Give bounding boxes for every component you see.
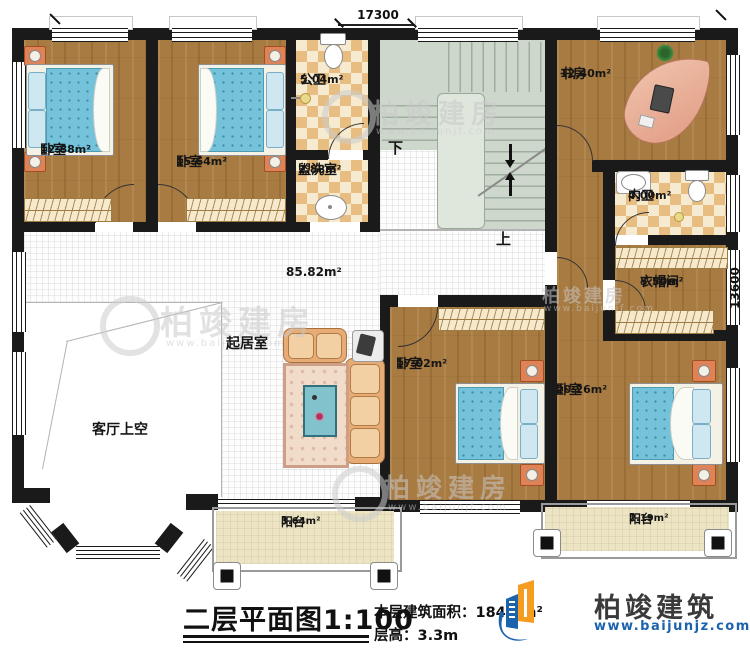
wall-bath-divider-a — [296, 150, 328, 160]
coffee-table — [303, 385, 337, 437]
title-underline-1 — [183, 635, 369, 638]
dimension-top: 17300 — [355, 8, 401, 22]
wardrobe-bedroom-3 — [438, 308, 545, 331]
pillow — [520, 389, 538, 424]
lamp-icon — [269, 156, 281, 168]
nightstand — [520, 464, 544, 486]
room-area: 15.64m² — [176, 156, 227, 169]
sofa-top — [283, 328, 347, 363]
window-top-bedroom-2 — [172, 28, 252, 42]
bed-3-mattress — [458, 387, 504, 460]
sink-dot — [328, 205, 332, 209]
column — [704, 529, 732, 557]
brand-logo — [494, 577, 552, 645]
nightstand — [520, 360, 544, 382]
sofa-right — [345, 358, 385, 464]
bay-window-bottom — [76, 546, 160, 559]
table-flower — [315, 412, 324, 421]
dimension-right: 13600 — [728, 258, 742, 318]
dimension-tick — [715, 9, 726, 20]
dimension-line-top — [338, 24, 414, 26]
floor-plan: 柏竣建房 www.baijunjf.com 柏竣建房 www.baijunjf.… — [0, 0, 750, 652]
storey-height-value: 3.3m — [418, 628, 459, 644]
wall-bed3-top-b — [438, 295, 545, 307]
room-area: 4.00m² — [628, 190, 671, 203]
bed-3-sheet-fold — [500, 387, 518, 460]
nightstand — [264, 46, 286, 66]
lamp-icon — [526, 365, 538, 377]
plant-icon — [656, 44, 674, 62]
pillow — [266, 110, 284, 148]
storey-height-line: 层高：3.3m — [374, 624, 458, 645]
wardrobe-cloakroom-top — [615, 247, 728, 269]
storey-height-label: 层高： — [374, 628, 418, 644]
room-area: 85.82m² — [286, 266, 342, 280]
void-outline-right — [221, 302, 222, 497]
wall-bed1-bed2 — [146, 40, 158, 222]
wall-stair-study-a — [545, 40, 557, 252]
wardrobe-bedroom-2 — [186, 198, 286, 222]
pillow — [28, 72, 46, 110]
wall-bedrooms-bottom-c — [196, 222, 310, 232]
title-underline-2 — [183, 641, 369, 643]
window-right-ensuite — [726, 175, 740, 232]
wall-bedrooms-bottom-a — [12, 222, 95, 232]
sofa-cushion — [288, 333, 314, 359]
lamp-icon — [698, 469, 710, 481]
column — [370, 562, 398, 590]
bed-4-sheet-fold — [670, 387, 694, 460]
lamp-icon — [526, 469, 538, 481]
dimension-tick — [334, 18, 344, 28]
wall-bath-stair — [368, 40, 380, 232]
column-core — [541, 537, 554, 550]
sofa-cushion — [316, 333, 342, 359]
brand-website: www.baijunjz.com — [594, 619, 750, 634]
room-area: 5.50m² — [640, 276, 683, 289]
wardrobe-bedroom-1 — [24, 198, 112, 222]
column-core — [221, 570, 234, 583]
window-right-study — [726, 55, 740, 135]
room-name: 客厅上空 — [92, 422, 148, 438]
toilet-bowl — [324, 44, 343, 69]
corridor-floor — [557, 160, 603, 341]
stair-arrow-down-head — [505, 172, 515, 180]
hall-floor-under-stairs — [380, 230, 545, 295]
pillow — [266, 72, 284, 110]
stair-flight-top — [438, 42, 545, 92]
pillow — [692, 424, 711, 459]
bed-4-mattress — [632, 387, 674, 460]
column — [213, 562, 241, 590]
lamp-icon — [269, 50, 281, 62]
window-left-bedroom-1 — [12, 62, 26, 148]
window-top-study — [600, 28, 695, 42]
stair-direction: 上 — [496, 231, 511, 248]
room-area: 5.04m² — [300, 74, 343, 87]
wall-bed3-top-a — [380, 295, 398, 307]
wall-ensuite-bottom — [648, 235, 726, 245]
room-area: 2.88m² — [298, 164, 341, 177]
plan-title-text: 二层平面图 — [183, 605, 323, 636]
void-area — [24, 302, 222, 497]
stair-direction: 下 — [388, 140, 403, 157]
room-area: 20.26m² — [556, 384, 607, 397]
wardrobe-cloakroom-bottom — [615, 310, 714, 334]
room-area: 12.88m² — [40, 144, 91, 157]
room-area: 12.40m² — [560, 68, 611, 81]
lamp-icon — [698, 365, 710, 377]
window-right-bedroom-4 — [726, 368, 740, 462]
bay-stub-left — [12, 488, 50, 503]
stair-arrow-up-stem — [509, 144, 512, 160]
window-top-stairwell — [418, 28, 518, 42]
wall-bed2-bath — [286, 40, 296, 222]
brand-logo-icon — [494, 577, 552, 645]
pillow — [520, 424, 538, 459]
stair-arrow-down-stem — [509, 180, 512, 196]
drain-stem — [291, 97, 300, 99]
nightstand — [692, 360, 716, 382]
window-left-void-2 — [12, 352, 26, 435]
wall-bedrooms-bottom-b — [133, 222, 158, 232]
sofa-cushion — [350, 396, 380, 426]
stair-landing-patch — [380, 150, 437, 230]
column-core — [712, 537, 725, 550]
window-left-void-1 — [12, 252, 26, 332]
room-area: 17.02m² — [396, 358, 447, 371]
stair-arrow-up-head — [505, 160, 515, 168]
lamp-icon — [29, 50, 41, 62]
bed-1-sheet-fold — [93, 68, 110, 152]
wall-corridor-bath-a — [603, 160, 615, 280]
room-area: 3.64m² — [281, 516, 320, 528]
room-area: 2.19m² — [629, 513, 668, 525]
nightstand — [24, 46, 46, 66]
wall-bedrooms-bottom-d — [360, 222, 380, 232]
floor-area-label: 本层建筑面积： — [374, 605, 476, 621]
stair-landing — [437, 93, 485, 229]
window-top-bedroom-1 — [52, 28, 128, 42]
toilet-bowl — [688, 180, 706, 202]
column-core — [378, 570, 391, 583]
stair-edge-line — [380, 229, 545, 231]
column — [533, 529, 561, 557]
table-decor — [312, 395, 317, 400]
sofa-cushion — [350, 428, 380, 458]
sofa-cushion — [350, 364, 380, 394]
pillow — [692, 389, 711, 424]
window-bottom-bedroom-3 — [420, 500, 520, 514]
wall-corridor-bath-b — [603, 310, 615, 332]
void-outline-top — [24, 302, 222, 303]
nightstand — [692, 464, 716, 486]
floor-drain — [300, 93, 311, 104]
floor-drain — [674, 212, 684, 222]
room-name: 起居室 — [226, 336, 268, 352]
